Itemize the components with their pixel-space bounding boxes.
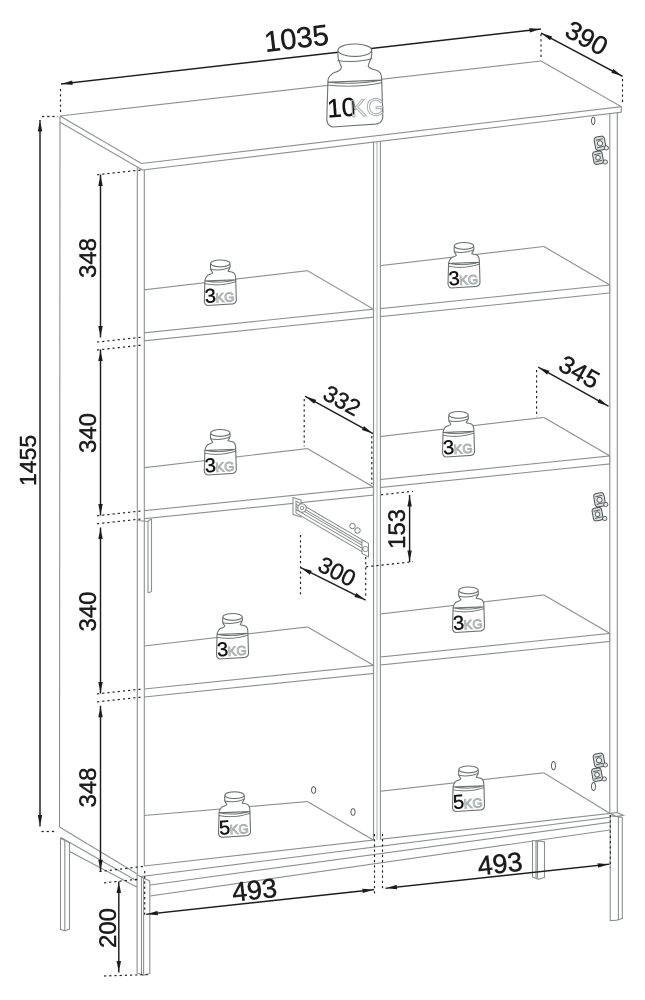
svg-text:KG: KG	[453, 441, 473, 457]
svg-text:KG: KG	[229, 821, 249, 837]
svg-text:KG: KG	[459, 272, 479, 288]
svg-text:348: 348	[75, 767, 102, 807]
svg-text:KG: KG	[215, 289, 235, 305]
svg-text:KG: KG	[215, 459, 235, 475]
svg-text:340: 340	[75, 591, 102, 631]
svg-text:340: 340	[75, 413, 102, 453]
svg-text:KG: KG	[463, 616, 483, 632]
svg-text:KG: KG	[463, 795, 483, 811]
svg-text:153: 153	[384, 509, 411, 549]
svg-text:493: 493	[230, 873, 278, 908]
svg-text:1455: 1455	[15, 435, 41, 486]
svg-text:348: 348	[75, 238, 102, 278]
svg-text:200: 200	[95, 908, 122, 948]
svg-text:KG: KG	[227, 643, 247, 659]
svg-text:493: 493	[476, 847, 524, 882]
svg-text:KG: KG	[349, 94, 385, 123]
